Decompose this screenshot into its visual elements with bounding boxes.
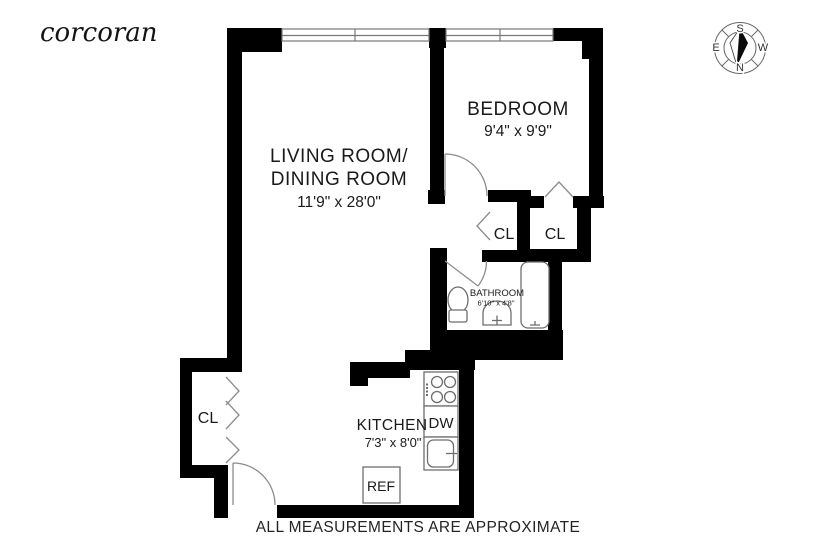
window-living-mullion [282, 29, 429, 41]
compass-e: E [712, 42, 719, 54]
corcoran-logo: corcoran [40, 18, 158, 48]
bedroom-dims: 9'4" x 9'9" [484, 123, 552, 140]
wall-segment [482, 250, 517, 262]
closet-hall-label: CL [494, 226, 515, 243]
bathroom-dims: 6'10" x 4'8" [478, 299, 515, 308]
refrigerator-label: REF [367, 478, 395, 494]
compass-w: W [758, 42, 769, 54]
dishwasher-label: DW [429, 415, 455, 432]
closet-entry-label: CL [198, 410, 219, 427]
wall-segment [459, 362, 474, 512]
closet-hall-bifold-door [477, 212, 490, 240]
entry-door-swing [233, 463, 275, 505]
compass-n: N [736, 62, 744, 74]
wall-segment [227, 28, 242, 370]
wall-segment [428, 190, 445, 204]
floorplan-canvas: corcoran [0, 0, 840, 560]
wall-segment [277, 505, 474, 518]
kitchen-label: KITCHEN [357, 417, 428, 434]
bedroom-door-swing [445, 154, 487, 196]
toilet-tank [449, 310, 467, 322]
wall-segment [214, 465, 228, 518]
window-bedroom-mullion [446, 29, 553, 41]
measurements-disclaimer: ALL MEASUREMENTS ARE APPROXIMATE [0, 519, 836, 537]
wall-segment [530, 196, 544, 208]
closet-bedroom-label: CL [545, 226, 566, 243]
kitchen-dims: 7'3" x 8'0" [365, 435, 422, 450]
bathroom-label: BATHROOM [470, 288, 524, 299]
bathtub [521, 262, 549, 328]
living-room-label-2: DINING ROOM [271, 169, 407, 190]
wall-segment [589, 41, 603, 208]
wall-segment [488, 190, 531, 202]
compass-s: S [736, 23, 743, 35]
room-labels: LIVING ROOM/ DINING ROOM 11'9" x 28'0" B… [198, 99, 569, 494]
windows [282, 29, 553, 41]
living-room-label-1: LIVING ROOM/ [270, 146, 408, 167]
closet-entry-bifold-door [226, 377, 239, 463]
wall-segment [430, 248, 447, 338]
floorplan: LIVING ROOM/ DINING ROOM 11'9" x 28'0" B… [0, 0, 840, 560]
wall-segment [548, 255, 562, 335]
toilet [448, 287, 468, 313]
compass-rose: S N E W [712, 23, 768, 75]
wall-segment [430, 42, 444, 204]
closet-bedroom-bifold-door [545, 182, 573, 197]
bedroom-label: BEDROOM [467, 99, 569, 120]
wall-segment [350, 362, 368, 386]
living-room-dims: 11'9" x 28'0" [297, 194, 381, 211]
bathroom-door-swing [445, 261, 487, 286]
wall-segment [180, 358, 192, 477]
